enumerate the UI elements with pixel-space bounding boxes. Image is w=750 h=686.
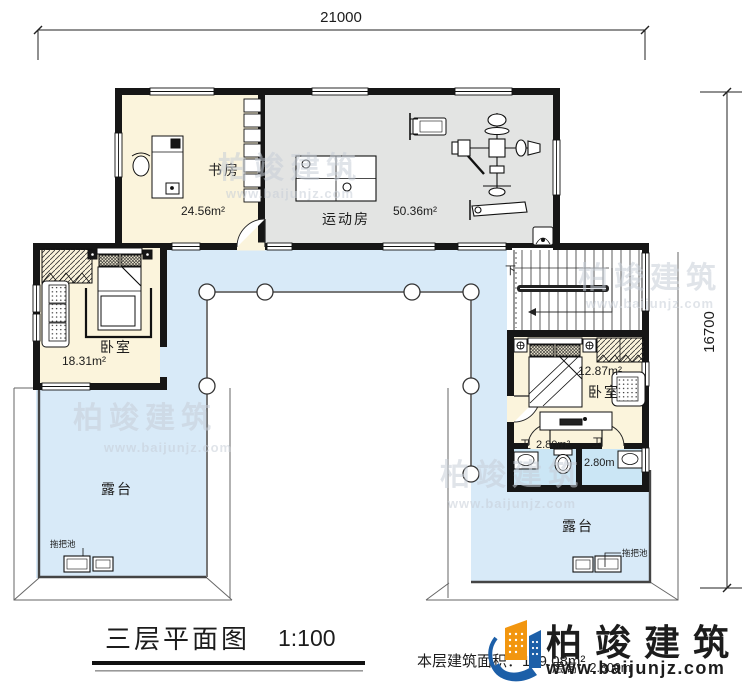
bath-right-label: 卫	[592, 437, 603, 449]
gym-label: 运动房	[322, 211, 370, 227]
wardrobe-right	[597, 338, 644, 362]
desk-chair	[133, 156, 149, 176]
mop-sink-right-label: 拖把池	[622, 548, 648, 558]
svg-text:www.baijunjz.com: www.baijunjz.com	[585, 296, 714, 311]
svg-text:www.baijunjz.com: www.baijunjz.com	[225, 186, 354, 201]
bedroom-left-wing: 卧室 18.31m²	[33, 243, 167, 390]
svg-text:柏竣建筑: 柏竣建筑	[73, 401, 217, 435]
svg-text:柏竣建筑: 柏竣建筑	[440, 458, 584, 492]
brand-logo: www.baijunjz.com 柏竣建筑	[490, 620, 742, 681]
terrace-right-label: 露台	[562, 518, 594, 534]
bath-right-fixtures	[618, 451, 642, 468]
courtyard-railing	[199, 284, 479, 577]
brand-logo-text: 柏竣建筑	[546, 622, 742, 663]
bath-left-label: 卫	[520, 439, 531, 451]
svg-text:柏竣建筑: 柏竣建筑	[578, 261, 722, 295]
wardrobe-left	[42, 249, 92, 283]
floor-plan-sheet: 21000 16700	[0, 0, 750, 686]
watermark: 柏竣建筑 www.baijunjz.com	[440, 458, 584, 511]
gym-corner-fixture	[533, 227, 553, 245]
bedroom-right-area: 12.87m²	[578, 364, 622, 378]
gym-area: 50.36m²	[393, 204, 437, 218]
bath-right-area: 2.80m	[584, 457, 615, 469]
brand-logo-icon	[490, 620, 541, 681]
dim-width-label: 21000	[320, 9, 362, 26]
sofa-left	[42, 281, 69, 347]
plan-title: 三层平面图	[105, 624, 250, 654]
svg-text:柏竣建筑: 柏竣建筑	[218, 151, 362, 185]
bath-left-area: 2.80m²	[536, 439, 571, 451]
svg-text:www.baijunjz.com: www.baijunjz.com	[447, 496, 576, 511]
dim-height-label: 16700	[701, 311, 718, 353]
terrace-left-label: 露台	[101, 481, 133, 497]
plan-scale: 1:100	[278, 625, 336, 651]
mop-sink-left-label: 拖把池	[50, 539, 76, 549]
study-area: 24.56m²	[181, 204, 225, 218]
dimension-right: 16700	[700, 88, 742, 592]
bedroom-left-area: 18.31m²	[62, 354, 106, 368]
watermark: 柏竣建筑 www.baijunjz.com	[218, 151, 362, 201]
vanity-counter	[540, 412, 612, 430]
bedroom-right-label: 卧室	[588, 384, 620, 400]
nightstand	[514, 339, 527, 352]
dimension-top: 21000	[34, 9, 649, 60]
stairs-down-label: 下	[505, 265, 516, 277]
floor-plan-drawing: 21000 16700	[0, 0, 750, 686]
bedroom-left-label: 卧室	[100, 339, 132, 355]
svg-text:www.baijunjz.com: www.baijunjz.com	[103, 440, 232, 455]
watermark: 柏竣建筑 www.baijunjz.com	[578, 261, 722, 311]
nightstand	[583, 339, 596, 352]
